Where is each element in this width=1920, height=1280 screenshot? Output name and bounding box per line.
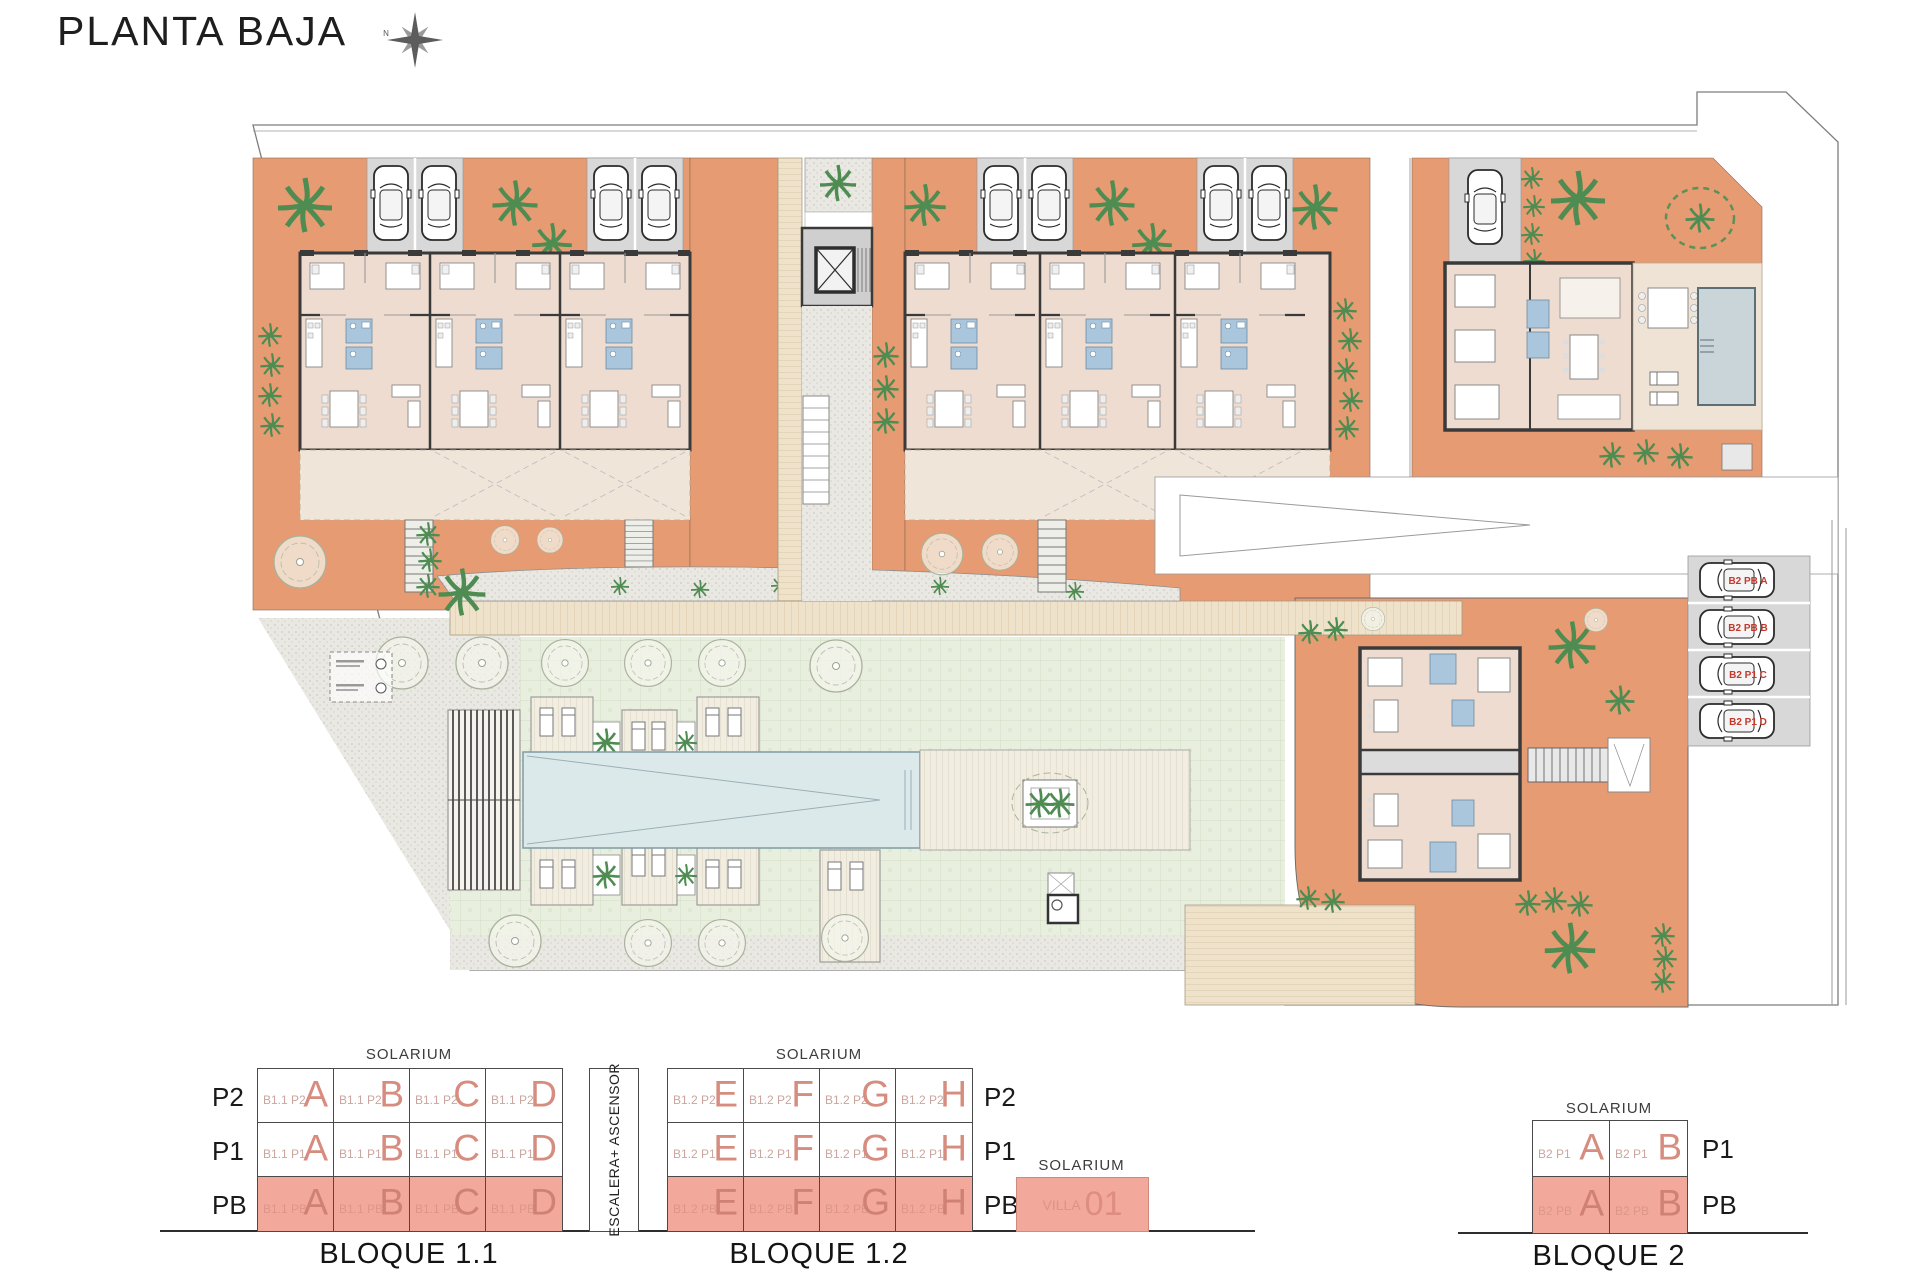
floor-plan-page: PLANTA BAJA [0,0,1920,1280]
unit-cell: B1.2 P2F [744,1069,820,1123]
solarium-label-b2: SOLARIUM [1532,1100,1686,1117]
unit-cell: B1.2 P2G [820,1069,896,1123]
unit-cell-highlighted: B1.1 PBD [486,1177,562,1231]
pergola [448,710,520,890]
unit-cell: B1.1 P1D [486,1123,562,1177]
bloque-2-caption: BLOQUE 2 [1532,1240,1686,1273]
unit-cell: B2 P1B [1610,1121,1687,1177]
floor-label-p1-b2: P1 [1702,1134,1734,1165]
floor-label-p1-b11: P1 [212,1136,244,1167]
solarium-label-b12: SOLARIUM [667,1046,971,1063]
unit-cell: B1.1 P2A [258,1069,334,1123]
unit-cell-highlighted: B1.2 PBE [668,1177,744,1231]
unit-cell-highlighted: B1.2 PBH [896,1177,972,1231]
unit-cell-highlighted: B2 PBA [1533,1177,1610,1233]
unit-cell-highlighted: B2 PBB [1610,1177,1687,1233]
bloque-2-diagram: B2 P1A B2 P1B B2 PBA B2 PBB [1532,1120,1688,1234]
floor-label-pb-b12: PB [984,1190,1019,1221]
escalera-ascensor-box: ESCALERA+ ASCENSOR [589,1068,639,1232]
bloque-1-1-caption: BLOQUE 1.1 [257,1238,561,1271]
bloque-1-1-diagram: B1.1 P2A B1.1 P2B B1.1 P2C B1.1 P2D B1.1… [257,1068,563,1232]
unit-cell: B2 P1A [1533,1121,1610,1177]
floor-label-pb-b2: PB [1702,1190,1737,1221]
equipment-legend [330,652,392,702]
floor-label-p1-b12: P1 [984,1136,1016,1167]
parking-bloque2: B2 PB A B2 PB B B2 P1 C B2 P1 D [1688,556,1810,746]
paved-patio [1185,905,1415,1005]
unit-cell: B1.1 P2D [486,1069,562,1123]
bloque-1-1-building [300,253,690,520]
south-deck [820,850,880,962]
escalera-ascensor-label: ESCALERA+ ASCENSOR [606,1063,622,1237]
unit-cell-highlighted: B1.1 PBA [258,1177,334,1231]
parking-label: B2 PB B [1728,623,1767,634]
parking-label: B2 P1 D [1729,717,1767,728]
deck-planter [1012,773,1088,833]
unit-cell: B1.2 P1E [668,1123,744,1177]
unit-cell-highlighted: B1.1 PBB [334,1177,410,1231]
floor-label-p2-b11: P2 [212,1082,244,1113]
solarium-label-villa: SOLARIUM [1016,1157,1147,1174]
pool [523,752,920,848]
floor-label-pb-b11: PB [212,1190,247,1221]
unit-cell: B1.2 P1G [820,1123,896,1177]
bloque-1-2-caption: BLOQUE 1.2 [667,1238,971,1271]
unit-cell: B1.1 P1C [410,1123,486,1177]
unit-cell: B1.1 P1B [334,1123,410,1177]
unit-cell-highlighted: B1.2 PBF [744,1177,820,1231]
compass-north-label: N [383,29,389,38]
floor-label-p2-b12: P2 [984,1082,1016,1113]
unit-cell-highlighted: B1.2 PBG [820,1177,896,1231]
compass-icon: N [383,12,443,68]
villa-number: 01 [1085,1185,1123,1224]
parking-label: B2 PB A [1728,576,1767,587]
parking-label: B2 P1 C [1729,670,1767,681]
villa-01-box: VILLA 01 [1016,1177,1149,1232]
unit-cell: B1.1 P2C [410,1069,486,1123]
bloque-2-building [1360,648,1520,880]
solarium-label-b11: SOLARIUM [257,1046,561,1063]
unit-cell: B1.1 P2B [334,1069,410,1123]
unit-cell: B1.2 P1H [896,1123,972,1177]
unit-cell: B1.2 P2E [668,1069,744,1123]
outdoor-shower [1048,873,1078,923]
unit-cell: B1.2 P1F [744,1123,820,1177]
bloque-1-2-diagram: B1.2 P2E B1.2 P2F B1.2 P2G B1.2 P2H B1.2… [667,1068,973,1232]
unit-cell-highlighted: B1.1 PBC [410,1177,486,1231]
unit-cell: B1.1 P1A [258,1123,334,1177]
site-plan: B2 PB A B2 PB B B2 P1 C B2 P1 D N [0,0,1920,1030]
unit-cell: B1.2 P2H [896,1069,972,1123]
villa-code: VILLA [1043,1197,1081,1213]
